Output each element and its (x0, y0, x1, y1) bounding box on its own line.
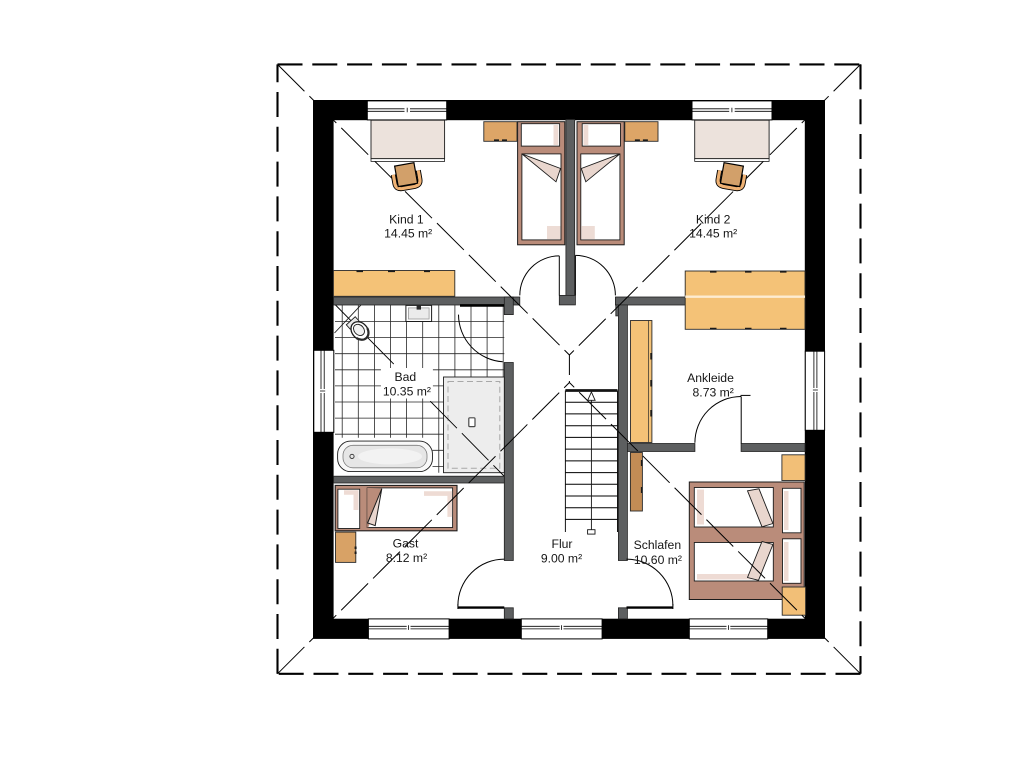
svg-text:Kind 1: Kind 1 (389, 212, 424, 226)
svg-text:Schlafen: Schlafen (634, 538, 681, 552)
svg-text:Flur: Flur (552, 537, 573, 551)
svg-text:10.60 m²: 10.60 m² (634, 553, 682, 567)
svg-text:Gast: Gast (393, 537, 419, 551)
svg-text:14.45 m²: 14.45 m² (689, 226, 737, 240)
svg-text:9.00 m²: 9.00 m² (541, 552, 582, 566)
svg-text:8.12 m²: 8.12 m² (386, 551, 427, 565)
svg-text:8.73 m²: 8.73 m² (693, 386, 734, 400)
svg-text:10.35 m²: 10.35 m² (383, 385, 431, 399)
svg-text:Bad: Bad (394, 370, 416, 384)
svg-text:Kind 2: Kind 2 (696, 212, 731, 226)
svg-text:14.45 m²: 14.45 m² (384, 226, 432, 240)
svg-text:Ankleide: Ankleide (687, 371, 734, 385)
